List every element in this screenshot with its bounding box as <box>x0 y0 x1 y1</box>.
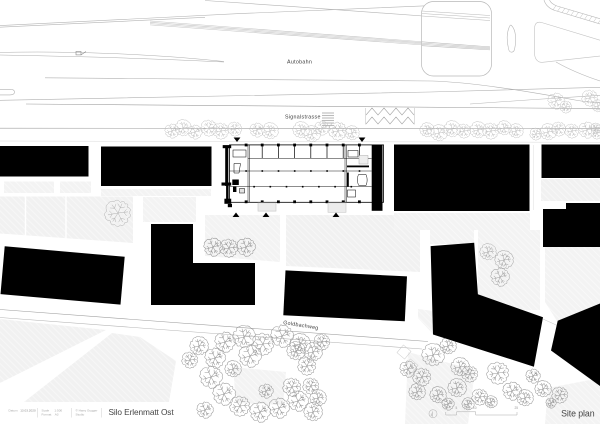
svg-text:Studio: Studio <box>76 413 85 417</box>
svg-text:25: 25 <box>515 406 519 410</box>
svg-text:0: 0 <box>445 406 447 410</box>
svg-text:Signalstrasse: Signalstrasse <box>285 115 321 121</box>
svg-text:10: 10 <box>473 406 477 410</box>
svg-text:Format A3: Format A3 <box>42 413 59 417</box>
svg-text:Site plan: Site plan <box>561 408 595 418</box>
svg-text:Datum 13.03.2020: Datum 13.03.2020 <box>9 409 36 413</box>
svg-text:5: 5 <box>456 406 458 410</box>
svg-text:Silo Erlenmatt Ost: Silo Erlenmatt Ost <box>109 407 175 417</box>
svg-text:Autobahn: Autobahn <box>287 60 312 66</box>
